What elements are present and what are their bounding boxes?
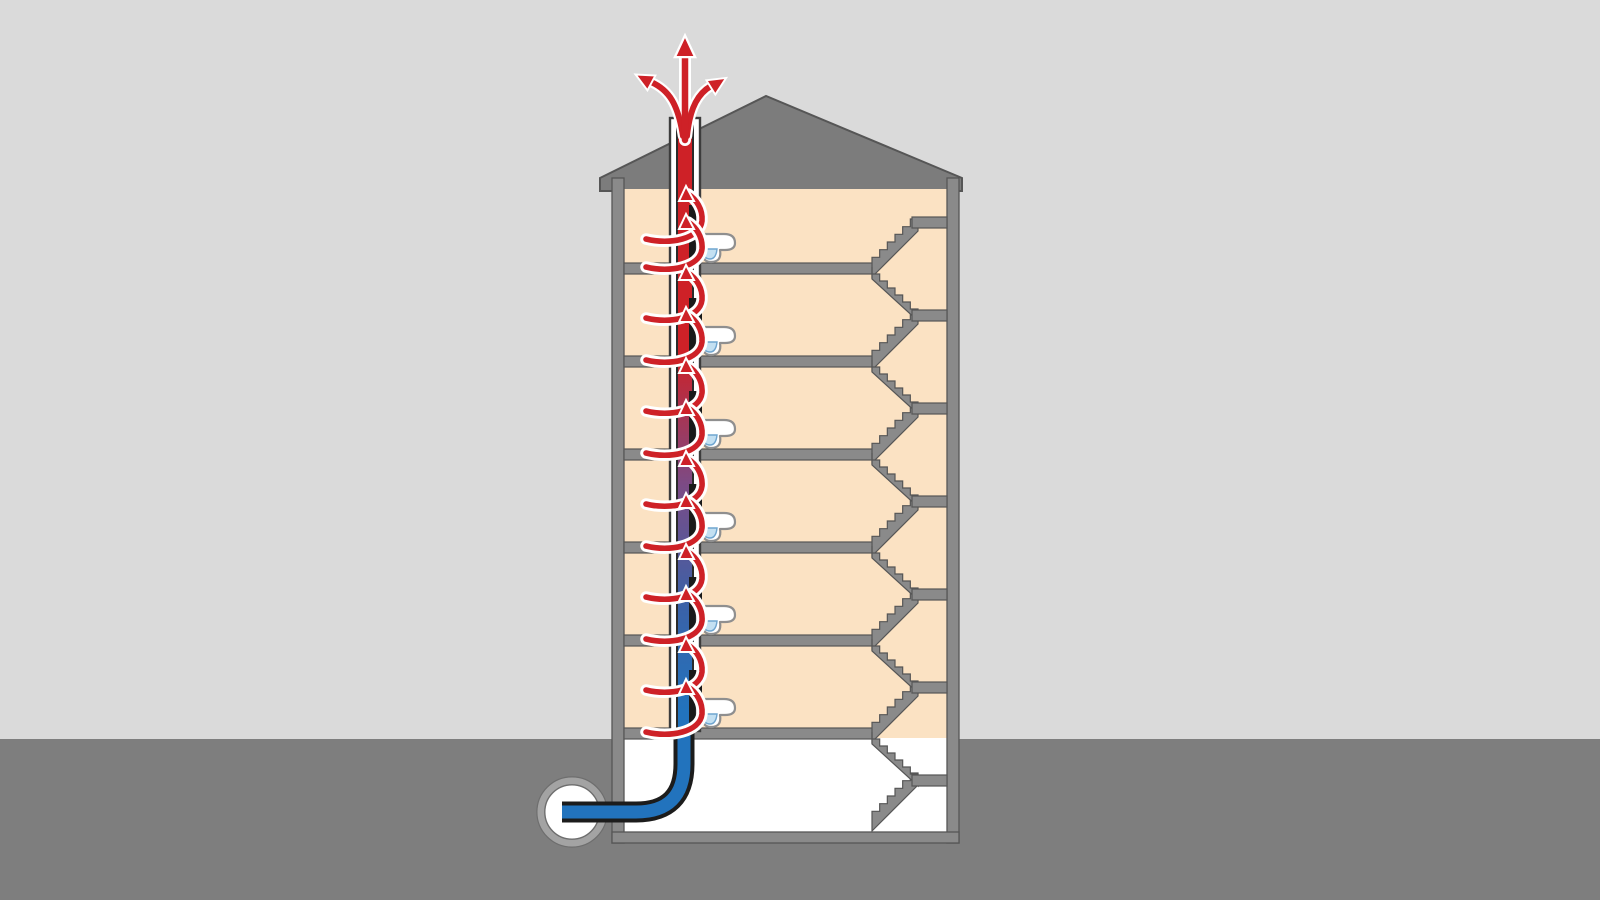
right-wall [947,178,959,843]
stair-landing [912,682,947,693]
stair-landing [912,310,947,321]
stair-landing [912,403,947,414]
stair-landing [912,496,947,507]
building-ventilation-diagram [0,0,1600,900]
stair-landing [912,775,947,786]
stair-landing [912,217,947,228]
basement-floor-slab [612,832,959,843]
stair-landing [912,589,947,600]
illustration-stage [0,0,1600,900]
left-wall [612,178,624,843]
